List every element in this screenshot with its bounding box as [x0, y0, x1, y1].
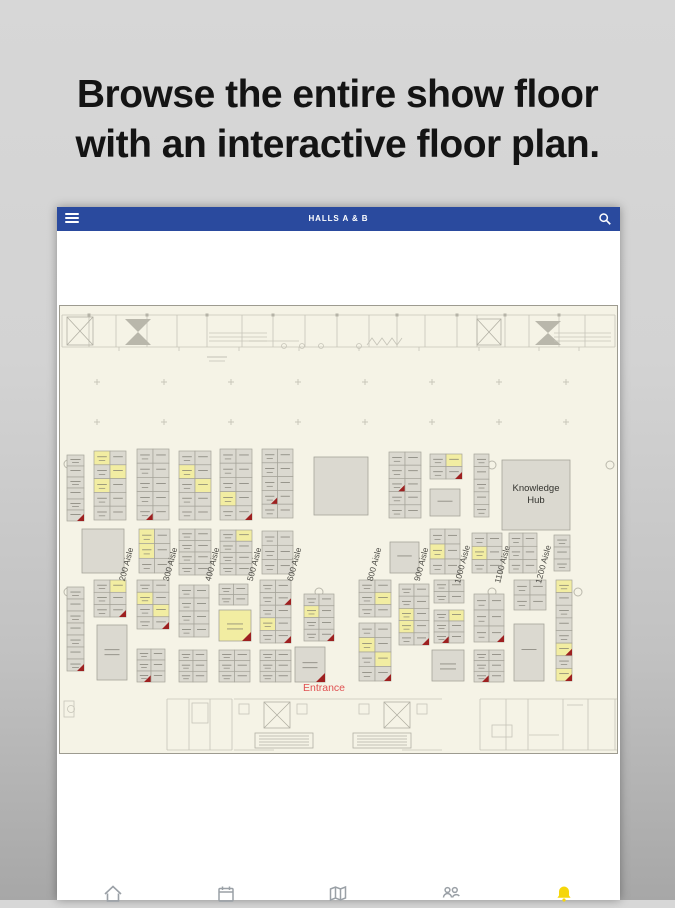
- booth-cell[interactable]: [445, 544, 460, 559]
- booth-cell[interactable]: [195, 506, 211, 520]
- booth-cell[interactable]: [556, 631, 572, 644]
- booth-cell[interactable]: [430, 529, 445, 544]
- booth-cell[interactable]: [236, 477, 252, 491]
- booth-cell[interactable]: [262, 531, 278, 545]
- booth-cell[interactable]: [220, 463, 236, 477]
- booth-cell[interactable]: [399, 608, 414, 620]
- booth-cell[interactable]: [399, 633, 414, 645]
- booth-cell[interactable]: [193, 661, 207, 672]
- booth-cell[interactable]: [262, 477, 278, 491]
- booth-cell[interactable]: [260, 650, 276, 661]
- app-screenshot-card: HALLS A & B KnowledgeHub200 Aisle300 Ais…: [57, 207, 620, 900]
- booth-cell[interactable]: [523, 546, 537, 559]
- booth-cell[interactable]: [375, 638, 391, 653]
- booth-cell[interactable]: [276, 650, 292, 661]
- map-icon: [331, 887, 346, 900]
- booth-cell[interactable]: [319, 594, 334, 606]
- booth-cell[interactable]: [278, 490, 294, 504]
- page-background: { "headline": { "line1": "Browse the ent…: [0, 0, 675, 900]
- booth-cell[interactable]: [414, 608, 429, 620]
- booth-cell[interactable]: [556, 605, 572, 618]
- booth-cell[interactable]: [67, 587, 84, 599]
- booth-cell[interactable]: [489, 610, 504, 626]
- booth-cell[interactable]: [236, 541, 252, 552]
- booth-cell[interactable]: [179, 598, 194, 611]
- booth-cell[interactable]: [67, 647, 84, 659]
- home-icon: [105, 887, 121, 902]
- booth-cell[interactable]: [523, 560, 537, 573]
- booth-label: Hub: [527, 495, 544, 506]
- booth-cell[interactable]: [389, 465, 405, 478]
- headline-line2: with an interactive floor plan.: [0, 120, 675, 170]
- booth-cell[interactable]: [262, 560, 278, 574]
- booth-cell[interactable]: [110, 465, 126, 479]
- booth-cell[interactable]: [179, 611, 194, 624]
- booth-cell[interactable]: [262, 545, 278, 559]
- booth-cell[interactable]: [236, 449, 252, 463]
- booth-cell[interactable]: [236, 492, 252, 506]
- booth-cell[interactable]: [67, 477, 84, 488]
- booth-cell[interactable]: [449, 632, 464, 643]
- booth-cell[interactable]: [67, 599, 84, 611]
- calendar-icon: [219, 887, 233, 902]
- headline-text: Browse the entire show floor with an int…: [0, 70, 675, 170]
- booth-cell[interactable]: [236, 463, 252, 477]
- booth-cell[interactable]: [195, 541, 211, 553]
- booth-cell[interactable]: [359, 592, 375, 604]
- booth-cell[interactable]: [94, 479, 110, 493]
- booth-cell[interactable]: [278, 477, 294, 491]
- booth-cell[interactable]: [278, 504, 294, 518]
- booth-cell[interactable]: [235, 650, 251, 661]
- booth-cell[interactable]: [179, 585, 194, 598]
- booth-cell[interactable]: [556, 618, 572, 631]
- booth-cell[interactable]: [219, 584, 234, 595]
- booth-cell[interactable]: [67, 499, 84, 510]
- booth-cell[interactable]: [523, 533, 537, 546]
- booth-cell[interactable]: [405, 492, 421, 505]
- booth-cell[interactable]: [179, 671, 193, 682]
- nav-map-button[interactable]: [328, 884, 348, 904]
- search-button[interactable]: [598, 212, 612, 226]
- booth-cell[interactable]: [195, 492, 211, 506]
- booth-cell[interactable]: [151, 649, 165, 660]
- booth-cell[interactable]: [219, 671, 235, 682]
- nav-people-button[interactable]: [441, 884, 461, 904]
- search-icon: [600, 214, 610, 224]
- booth-cell[interactable]: [234, 595, 249, 606]
- booth-cell[interactable]: [430, 467, 446, 480]
- booth-cell[interactable]: [509, 533, 523, 546]
- booth-cell[interactable]: [94, 492, 110, 506]
- booth-cell[interactable]: [278, 463, 294, 477]
- booth-cell[interactable]: [278, 449, 294, 463]
- booth-cell[interactable]: [179, 506, 195, 520]
- booth-cell[interactable]: [405, 478, 421, 491]
- booth-cell[interactable]: [260, 618, 276, 631]
- booth-cell[interactable]: [179, 465, 195, 479]
- booth-cell[interactable]: [556, 580, 572, 593]
- booth-cell[interactable]: [137, 492, 153, 506]
- booth-cell[interactable]: [137, 660, 151, 671]
- booth-cell[interactable]: [219, 661, 235, 672]
- booth-cell[interactable]: [220, 541, 236, 552]
- booth-cell[interactable]: [179, 529, 195, 541]
- booth-cell[interactable]: [151, 660, 165, 671]
- booth-cell[interactable]: [94, 580, 110, 592]
- booth-cell[interactable]: [195, 451, 211, 465]
- booth-cell[interactable]: [319, 618, 334, 630]
- booth-cell[interactable]: [153, 492, 169, 506]
- booth-cell[interactable]: [474, 492, 489, 505]
- booth-cell[interactable]: [139, 558, 155, 573]
- booth-cell[interactable]: [194, 585, 209, 598]
- booth-cell[interactable]: [399, 621, 414, 633]
- booth-cell[interactable]: [195, 465, 211, 479]
- booth-cell[interactable]: [195, 529, 211, 541]
- booth-cell[interactable]: [94, 506, 110, 520]
- booth-cell[interactable]: [446, 454, 462, 467]
- booth-cell[interactable]: [414, 596, 429, 608]
- booth-cell[interactable]: [67, 611, 84, 623]
- booth-cell[interactable]: [472, 546, 487, 559]
- booth-cell[interactable]: [260, 661, 276, 672]
- booth-cell[interactable]: [219, 650, 235, 661]
- booth-cell[interactable]: [110, 592, 126, 604]
- booth-cell[interactable]: [137, 649, 151, 660]
- booth-cell[interactable]: [179, 650, 193, 661]
- booth-cell[interactable]: [554, 547, 570, 559]
- booth-cell[interactable]: [434, 580, 449, 592]
- booth-cell[interactable]: [375, 623, 391, 638]
- booth-cell[interactable]: [276, 580, 292, 593]
- booth-cell[interactable]: [94, 605, 110, 617]
- booth-cell[interactable]: [414, 584, 429, 596]
- booth-cell[interactable]: [474, 650, 489, 661]
- booth-cell[interactable]: [276, 661, 292, 672]
- booth-cell[interactable]: [94, 592, 110, 604]
- booth-cell[interactable]: [405, 465, 421, 478]
- booth-cell[interactable]: [389, 492, 405, 505]
- booth-cell[interactable]: [155, 529, 171, 544]
- booth-cell[interactable]: [276, 671, 292, 682]
- booth-cell[interactable]: [304, 594, 319, 606]
- booth-cell[interactable]: [359, 605, 375, 617]
- booth-cell[interactable]: [179, 564, 195, 576]
- booth-cell[interactable]: [554, 535, 570, 547]
- booth-cell[interactable]: [474, 661, 489, 672]
- booth-cell[interactable]: [220, 449, 236, 463]
- booth-cell[interactable]: [137, 449, 153, 463]
- booth-cell[interactable]: [530, 595, 546, 610]
- booth-cell[interactable]: [179, 492, 195, 506]
- booth-cell[interactable]: [153, 449, 169, 463]
- booth-cell[interactable]: [153, 592, 169, 604]
- booth-cell[interactable]: [260, 593, 276, 606]
- booth-cell[interactable]: [193, 650, 207, 661]
- booth-cell[interactable]: [434, 592, 449, 604]
- booth-cell[interactable]: [489, 650, 504, 661]
- booth-cell[interactable]: [474, 467, 489, 480]
- booth-cell[interactable]: [110, 492, 126, 506]
- booth-cell[interactable]: [94, 465, 110, 479]
- booth-cell[interactable]: [319, 606, 334, 618]
- booth-cell[interactable]: [304, 629, 319, 641]
- booth-cell[interactable]: [556, 656, 572, 669]
- booth-cell[interactable]: [514, 580, 530, 595]
- booth-cell[interactable]: [220, 506, 236, 520]
- booth-cell[interactable]: [193, 671, 207, 682]
- booth-cell[interactable]: [234, 584, 249, 595]
- booth-cell[interactable]: [474, 479, 489, 492]
- booth-cell[interactable]: [94, 451, 110, 465]
- booth-cell[interactable]: [430, 559, 445, 574]
- booth-cell[interactable]: [220, 564, 236, 575]
- booth-cell[interactable]: [179, 479, 195, 493]
- booth-cell[interactable]: [137, 477, 153, 491]
- booth-corner[interactable]: [295, 647, 325, 682]
- booth-cell[interactable]: [449, 621, 464, 632]
- booth-cell[interactable]: [405, 505, 421, 518]
- booth-cell[interactable]: [474, 594, 489, 610]
- booth-cell[interactable]: [260, 580, 276, 593]
- booth-cell[interactable]: [67, 466, 84, 477]
- booth-single-1[interactable]: [430, 489, 460, 516]
- booth-cell[interactable]: [260, 671, 276, 682]
- booth-cell[interactable]: [179, 451, 195, 465]
- booth-cell[interactable]: [153, 605, 169, 617]
- headline-line1: Browse the entire show floor: [0, 70, 675, 120]
- nav-home-button[interactable]: [103, 884, 123, 904]
- booth-cell[interactable]: [445, 529, 460, 544]
- booth-cell[interactable]: [276, 618, 292, 631]
- booth-cell[interactable]: [220, 530, 236, 541]
- booth-mid-left[interactable]: [82, 529, 124, 573]
- booth-cell[interactable]: [375, 605, 391, 617]
- alerts-bell-icon: [557, 887, 570, 902]
- booth-cell[interactable]: [389, 505, 405, 518]
- booth-cell[interactable]: [110, 506, 126, 520]
- booth-cell[interactable]: [110, 451, 126, 465]
- booth-cell[interactable]: [194, 624, 209, 637]
- booth-cell[interactable]: [260, 605, 276, 618]
- booth-cell[interactable]: [449, 592, 464, 604]
- booth-cell[interactable]: [276, 605, 292, 618]
- booth-cell[interactable]: [449, 610, 464, 621]
- booth-cell[interactable]: [262, 463, 278, 477]
- bottom-nav-bar: [57, 884, 620, 908]
- booth-cell[interactable]: [489, 661, 504, 672]
- booth-cell[interactable]: [389, 452, 405, 465]
- booth-cell[interactable]: [556, 593, 572, 606]
- booth-label: Knowledge: [512, 483, 559, 494]
- booth-cell[interactable]: [474, 454, 489, 467]
- booth-cell[interactable]: [472, 533, 487, 546]
- booth-cell[interactable]: [195, 479, 211, 493]
- booth-cell[interactable]: [260, 630, 276, 643]
- booth-cell[interactable]: [474, 504, 489, 517]
- booth-cell[interactable]: [235, 671, 251, 682]
- booth-cell[interactable]: [235, 661, 251, 672]
- booth-cell[interactable]: [194, 611, 209, 624]
- booth-cell[interactable]: [151, 671, 165, 682]
- booth-cell[interactable]: [399, 596, 414, 608]
- booth-lab[interactable]: [432, 650, 464, 681]
- booth-cell[interactable]: [375, 652, 391, 667]
- booth-cell[interactable]: [430, 454, 446, 467]
- booth-cell[interactable]: [153, 506, 169, 520]
- booth-cell[interactable]: [110, 479, 126, 493]
- booth-cell[interactable]: [414, 621, 429, 633]
- booth-cell[interactable]: [554, 559, 570, 571]
- booth-cell[interactable]: [434, 621, 449, 632]
- entrance-label: Entrance: [303, 682, 345, 694]
- booth-cell[interactable]: [474, 626, 489, 642]
- booth-pavilion[interactable]: [97, 625, 127, 680]
- booth-cell[interactable]: [359, 652, 375, 667]
- booth-cell[interactable]: [359, 667, 375, 682]
- booth-cell[interactable]: [430, 544, 445, 559]
- booth-cell[interactable]: [489, 594, 504, 610]
- booth-cell[interactable]: [405, 452, 421, 465]
- booth-cell[interactable]: [514, 595, 530, 610]
- booth-cell[interactable]: [194, 598, 209, 611]
- app-header-title: HALLS A & B: [57, 207, 620, 231]
- booth-cell[interactable]: [153, 463, 169, 477]
- nav-alerts-button[interactable]: [554, 884, 574, 904]
- booth-cell[interactable]: [153, 477, 169, 491]
- booth-cell[interactable]: [137, 463, 153, 477]
- booth-cell[interactable]: [67, 623, 84, 635]
- booth-cell[interactable]: [359, 623, 375, 638]
- app-header-bar: HALLS A & B: [57, 207, 620, 231]
- booth-cell[interactable]: [179, 541, 195, 553]
- booth-cell[interactable]: [262, 504, 278, 518]
- booth-cell[interactable]: [399, 584, 414, 596]
- booth-cell[interactable]: [262, 449, 278, 463]
- booth-cell[interactable]: [67, 488, 84, 499]
- booth-cell[interactable]: [220, 492, 236, 506]
- booth-cell[interactable]: [220, 553, 236, 564]
- booth-cell[interactable]: [179, 552, 195, 564]
- booth-large-a[interactable]: [314, 457, 368, 515]
- booth-cell[interactable]: [220, 477, 236, 491]
- booth-cell[interactable]: [137, 580, 153, 592]
- booth-cell[interactable]: [509, 560, 523, 573]
- booth-cell[interactable]: [236, 530, 252, 541]
- booth-cell[interactable]: [137, 605, 153, 617]
- booth-cell[interactable]: [489, 671, 504, 682]
- booth-cell[interactable]: [139, 529, 155, 544]
- people-icon: [444, 888, 460, 898]
- booth-cell[interactable]: [487, 533, 502, 546]
- booth-cell[interactable]: [219, 595, 234, 606]
- booth-cell[interactable]: [139, 544, 155, 559]
- booth-cell[interactable]: [137, 617, 153, 629]
- booth-cell[interactable]: [359, 638, 375, 653]
- booth-cell[interactable]: [375, 580, 391, 592]
- booth-cell[interactable]: [67, 455, 84, 466]
- booth-cell[interactable]: [304, 606, 319, 618]
- booth-cell[interactable]: [472, 560, 487, 573]
- booth-lounge[interactable]: [219, 610, 251, 641]
- booth-cell[interactable]: [67, 635, 84, 647]
- booth-cell[interactable]: [474, 610, 489, 626]
- booth-tall[interactable]: [514, 624, 544, 681]
- floor-plan-map[interactable]: KnowledgeHub200 Aisle300 Aisle400 Aisle5…: [59, 305, 618, 754]
- booth-cell[interactable]: [137, 592, 153, 604]
- booth-cell[interactable]: [278, 531, 294, 545]
- booth-cell[interactable]: [179, 624, 194, 637]
- booth-cell[interactable]: [375, 592, 391, 604]
- booth-cell[interactable]: [304, 618, 319, 630]
- nav-schedule-button[interactable]: [216, 884, 236, 904]
- booth-cell[interactable]: [179, 661, 193, 672]
- booth-cell[interactable]: [434, 610, 449, 621]
